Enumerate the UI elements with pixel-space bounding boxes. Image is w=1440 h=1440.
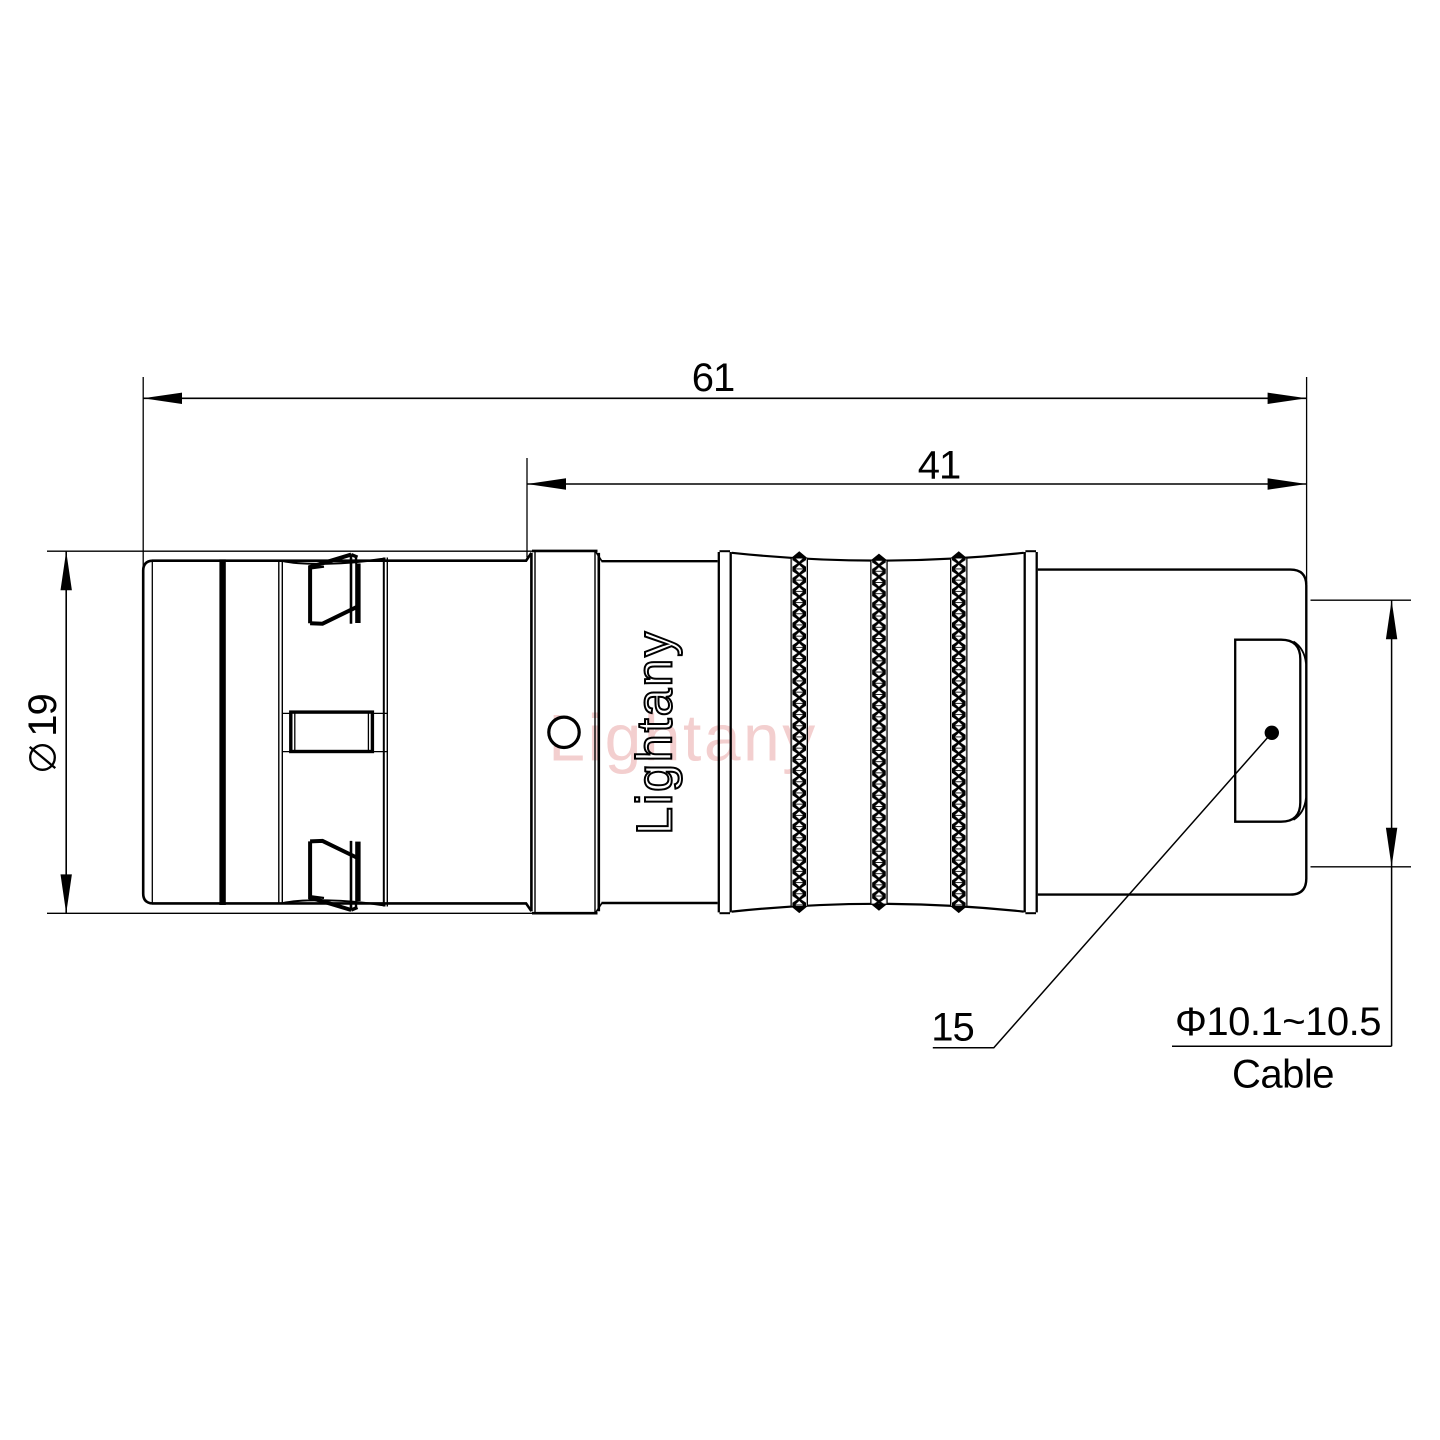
svg-text:19: 19	[21, 694, 65, 737]
svg-text:41: 41	[918, 444, 961, 488]
svg-text:Lightany: Lightany	[548, 701, 818, 775]
svg-text:Φ10.1~10.5: Φ10.1~10.5	[1175, 1000, 1381, 1044]
svg-text:Cable: Cable	[1232, 1053, 1334, 1097]
svg-text:15: 15	[931, 1006, 974, 1050]
svg-text:Lightany: Lightany	[626, 630, 682, 835]
svg-text:61: 61	[692, 356, 735, 400]
